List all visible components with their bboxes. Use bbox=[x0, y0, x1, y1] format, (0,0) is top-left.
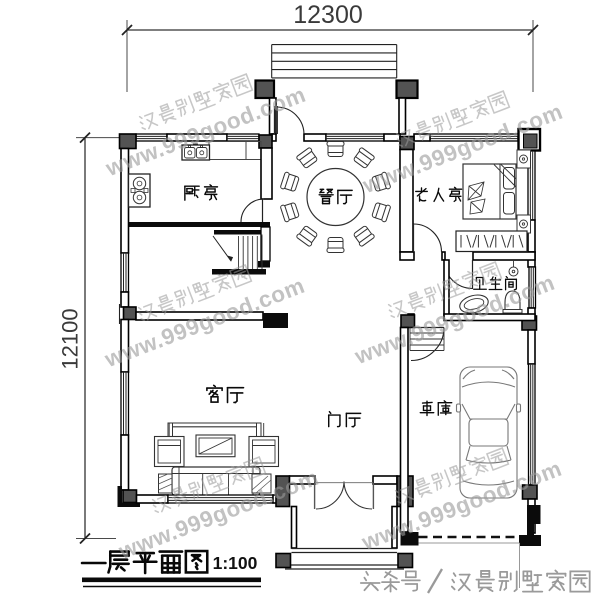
svg-text:12100: 12100 bbox=[58, 308, 83, 369]
svg-text:12300: 12300 bbox=[293, 1, 363, 29]
svg-text:1:100: 1:100 bbox=[213, 553, 258, 573]
